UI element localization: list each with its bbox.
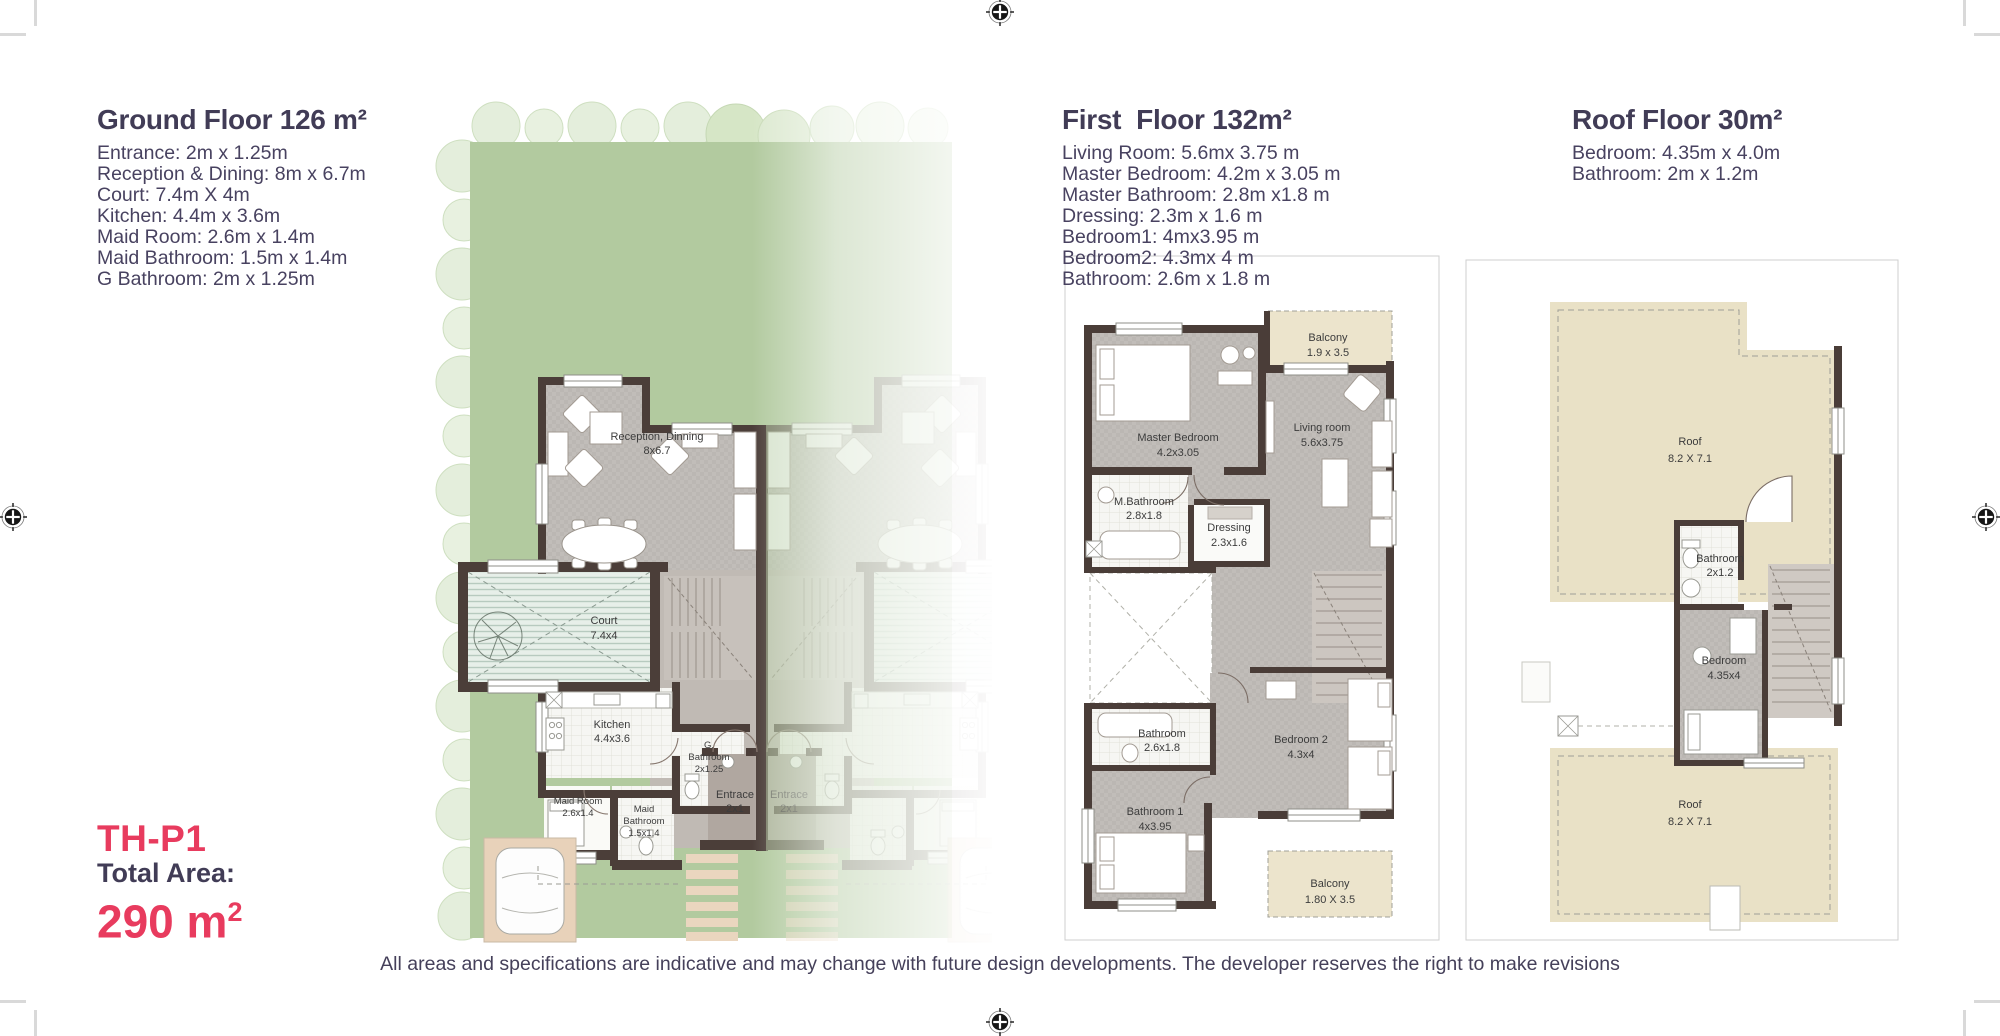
landing-notch <box>1710 886 1740 930</box>
room-dim-maid-bath: 1.5x1.4 <box>628 828 659 839</box>
room-spec: Bedroom1: 4mx3.95 m <box>1062 227 1341 248</box>
crop-mark <box>1963 1010 1966 1036</box>
room-label-bedroom1: Bathroom 1 <box>1127 806 1184 818</box>
stairs <box>1768 564 1834 718</box>
registration-mark-icon <box>986 1008 1014 1036</box>
total-area-label: Total Area: <box>97 858 242 889</box>
crop-mark <box>34 1010 37 1036</box>
first-floor-title: First Floor 132m² <box>1062 104 1341 136</box>
room-label-balcony-top: Balcony <box>1308 332 1348 344</box>
disclaimer: All areas and specifications are indicat… <box>0 953 2000 976</box>
roof-terrace-bottom <box>1550 748 1838 922</box>
room-spec: Bathroom: 2m x 1.2m <box>1572 164 1782 185</box>
room-label-master: Master Bedroom <box>1137 432 1218 444</box>
room-dim-entrance: 2x1 <box>726 803 744 815</box>
room-label-gbath-1: G. <box>704 740 714 751</box>
ground-floor-title: Ground Floor 126 m² <box>97 104 367 136</box>
room-label-maid-room: Maid Room <box>554 796 603 807</box>
room-label-kitchen: Kitchen <box>594 719 631 731</box>
court-void <box>1090 573 1212 703</box>
registration-mark-icon <box>1972 503 2000 531</box>
room-label-roof-bottom: Roof <box>1678 799 1702 811</box>
brochure-page: Reception, Dinning 8x6.7 Court 7.4x4 Kit… <box>0 0 2000 1036</box>
unit-code: TH-P1 <box>97 820 242 858</box>
stairs <box>664 576 756 680</box>
room-spec: Dressing: 2.3m x 1.6 m <box>1062 206 1341 227</box>
roof-floor-plan: Roof 8.2 X 7.1 Bathroom 2x1.2 Bedroom 4.… <box>1462 258 1902 942</box>
room-label-bedroom2: Bedroom 2 <box>1274 734 1328 746</box>
room-label-mbath: M.Bathroom <box>1114 496 1174 508</box>
fade-overlay <box>752 96 992 948</box>
room-dim-kitchen: 4.4x3.6 <box>594 733 630 745</box>
room-label-roof-top: Roof <box>1678 436 1702 448</box>
room-dim-reception: 8x6.7 <box>644 445 671 457</box>
first-floor-room-list: Living Room: 5.6mx 3.75 mMaster Bedroom:… <box>1062 143 1341 290</box>
room-label-gbath-2: Bathroom <box>688 752 729 763</box>
room-dim-balcony-top: 1.9 x 3.5 <box>1307 347 1349 359</box>
room-spec: Master Bedroom: 4.2m x 3.05 m <box>1062 164 1341 185</box>
registration-mark-icon <box>986 0 1014 26</box>
room-label-entrance: Entrace <box>716 789 754 801</box>
roof-floor-room-list: Bedroom: 4.35m x 4.0mBathroom: 2m x 1.2m <box>1572 143 1782 185</box>
room-dim-roof-bath: 2x1.2 <box>1707 567 1734 579</box>
room-dim-master: 4.2x3.05 <box>1157 447 1199 459</box>
column-marker <box>1086 541 1102 557</box>
room-label-maid-bath-2: Bathroom <box>623 816 664 827</box>
room-dim-court: 7.4x4 <box>591 630 618 642</box>
roof-floor-title: Roof Floor 30m² <box>1572 104 1782 136</box>
crop-mark <box>1974 33 2000 36</box>
room-dim-bedroom1: 4x3.95 <box>1138 821 1171 833</box>
room-spec: Kitchen: 4.4m x 3.6m <box>97 206 367 227</box>
room-spec: Bathroom: 2.6m x 1.8 m <box>1062 269 1341 290</box>
total-area-sup: 2 <box>227 897 242 927</box>
crop-mark <box>0 33 26 36</box>
room-label-maid-bath-1: Maid <box>634 804 655 815</box>
room-label-roof-bedroom: Bedroom <box>1702 655 1747 667</box>
spec-ground-floor: Ground Floor 126 m² Entrance: 2m x 1.25m… <box>97 104 367 290</box>
room-spec: Maid Bathroom: 1.5m x 1.4m <box>97 248 367 269</box>
room-dim-maid-room: 2.6x1.4 <box>562 808 593 819</box>
room-spec: Reception & Dining: 8m x 6.7m <box>97 164 367 185</box>
crop-mark <box>0 1000 26 1003</box>
ground-floor-room-list: Entrance: 2m x 1.25mReception & Dining: … <box>97 143 367 290</box>
dining-table <box>562 518 646 570</box>
crop-mark <box>1963 0 1966 26</box>
room-spec: Entrance: 2m x 1.25m <box>97 143 367 164</box>
room-spec: Master Bathroom: 2.8m x1.8 m <box>1062 185 1341 206</box>
room-dim-bathroom: 2.6x1.8 <box>1144 742 1180 754</box>
room-label-court: Court <box>591 615 618 627</box>
room-label-dressing: Dressing <box>1207 522 1250 534</box>
unit-summary: TH-P1 Total Area: 290 m2 <box>97 820 242 944</box>
room-spec: Court: 7.4m X 4m <box>97 185 367 206</box>
room-spec: Bedroom2: 4.3mx 4 m <box>1062 248 1341 269</box>
room-dim-dressing: 2.3x1.6 <box>1211 537 1247 549</box>
room-label-balcony-bottom: Balcony <box>1310 878 1350 890</box>
room-dim-gbath: 2x1.25 <box>695 764 724 775</box>
room-spec: Living Room: 5.6mx 3.75 m <box>1062 143 1341 164</box>
room-dim-mbath: 2.8x1.8 <box>1126 510 1162 522</box>
spec-roof-floor: Roof Floor 30m² Bedroom: 4.35m x 4.0mBat… <box>1572 104 1782 185</box>
room-dim-bedroom2: 4.3x4 <box>1288 749 1315 761</box>
room-dim-balcony-bottom: 1.80 X 3.5 <box>1305 894 1355 906</box>
total-area-value: 290 m2 <box>97 889 242 944</box>
crop-mark <box>34 0 37 26</box>
room-spec: G Bathroom: 2m x 1.25m <box>97 269 367 290</box>
total-area-number: 290 m <box>97 895 227 947</box>
room-label-bathroom: Bathroom <box>1138 728 1186 740</box>
room-dim-living: 5.6x3.75 <box>1301 437 1343 449</box>
room-dim-roof-bottom: 8.2 X 7.1 <box>1668 816 1712 828</box>
room-spec: Maid Room: 2.6m x 1.4m <box>97 227 367 248</box>
spec-first-floor: First Floor 132m² Living Room: 5.6mx 3.7… <box>1062 104 1341 290</box>
column-marker <box>1558 716 1578 736</box>
room-dim-roof-bedroom: 4.35x4 <box>1707 670 1740 682</box>
room-label-living: Living room <box>1294 422 1351 434</box>
first-floor-plan: Balcony 1.9 x 3.5 Master Bedroom 4.2x3.0… <box>1060 253 1440 945</box>
room-label-reception: Reception, Dinning <box>611 431 704 443</box>
crop-mark <box>1974 1000 2000 1003</box>
side-ledge <box>1522 662 1550 702</box>
ground-floor-plan: Reception, Dinning 8x6.7 Court 7.4x4 Kit… <box>432 96 992 948</box>
room-dim-roof-top: 8.2 X 7.1 <box>1668 453 1712 465</box>
room-label-roof-bath: Bathroom <box>1696 553 1744 565</box>
car <box>484 838 576 942</box>
room-spec: Bedroom: 4.35m x 4.0m <box>1572 143 1782 164</box>
registration-mark-icon <box>0 503 27 531</box>
